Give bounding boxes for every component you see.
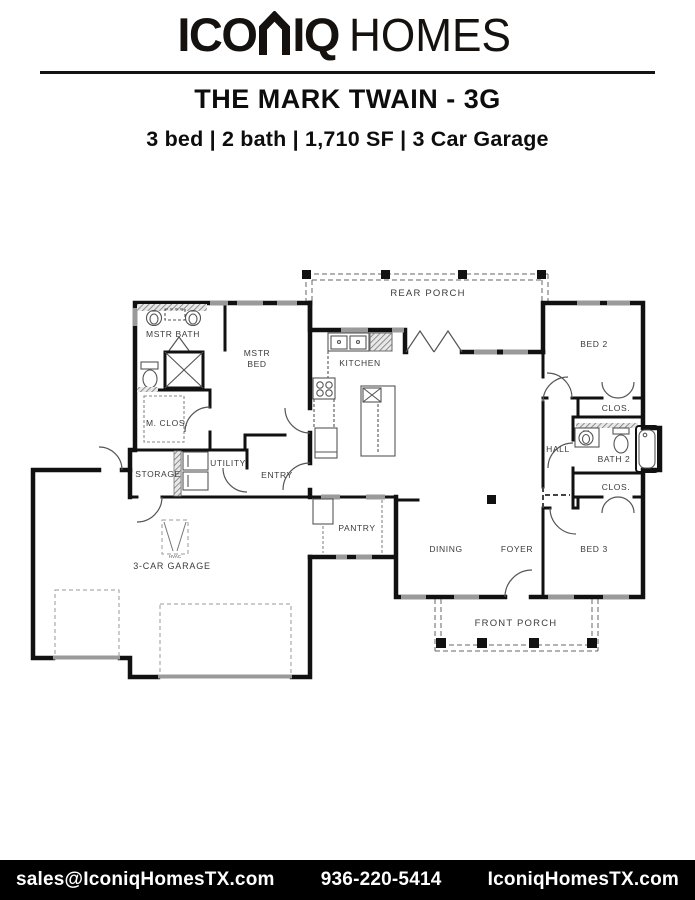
room-label-hall: HALL xyxy=(546,444,570,454)
living-post xyxy=(487,495,496,504)
hvac-symbol xyxy=(164,522,186,551)
room-label-bath2: BATH 2 xyxy=(598,454,631,464)
room-label-front-porch: FRONT PORCH xyxy=(475,618,558,629)
room-label-storage: STORAGE xyxy=(135,469,181,479)
room-label-clos1: CLOS. xyxy=(602,403,631,413)
footer-email: sales@IconiqHomesTX.com xyxy=(16,869,275,891)
room-label-pantry: PANTRY xyxy=(338,523,375,533)
room-label-mstr-bed-2: BED xyxy=(247,359,266,369)
footer-bar: sales@IconiqHomesTX.com 936-220-5414 Ico… xyxy=(0,860,695,900)
bath2-fixtures xyxy=(575,423,658,472)
room-label-utility: UTILITY xyxy=(210,458,246,468)
room-label-mstr-bath: MSTR BATH xyxy=(146,329,200,339)
room-label-m-clos: M. CLOS. xyxy=(146,418,188,428)
kitchen-fixtures xyxy=(313,333,395,458)
room-label-bed3: BED 3 xyxy=(580,544,608,554)
garage-door-aprons xyxy=(55,520,291,675)
room-label-rear-porch: REAR PORCH xyxy=(390,288,465,299)
floor-plan: REAR PORCH MSTR BATH MSTR BED KITCHEN BE… xyxy=(0,0,695,900)
room-label-foyer: FOYER xyxy=(501,544,533,554)
room-label-kitchen: KITCHEN xyxy=(339,358,381,368)
room-label-entry: ENTRY xyxy=(261,470,293,480)
room-label-hvac: HVAC xyxy=(169,554,182,559)
window-mullion xyxy=(497,350,503,355)
room-label-garage: 3-CAR GARAGE xyxy=(133,561,211,571)
room-label-bed2: BED 2 xyxy=(580,339,608,349)
front-porch-posts xyxy=(436,638,597,648)
footer-website: IconiqHomesTX.com xyxy=(488,869,679,891)
room-label-dining: DINING xyxy=(429,544,462,554)
room-label-mstr-bed-1: MSTR xyxy=(244,348,270,358)
footer-phone: 936-220-5414 xyxy=(321,869,442,891)
room-label-clos2: CLOS. xyxy=(602,482,631,492)
